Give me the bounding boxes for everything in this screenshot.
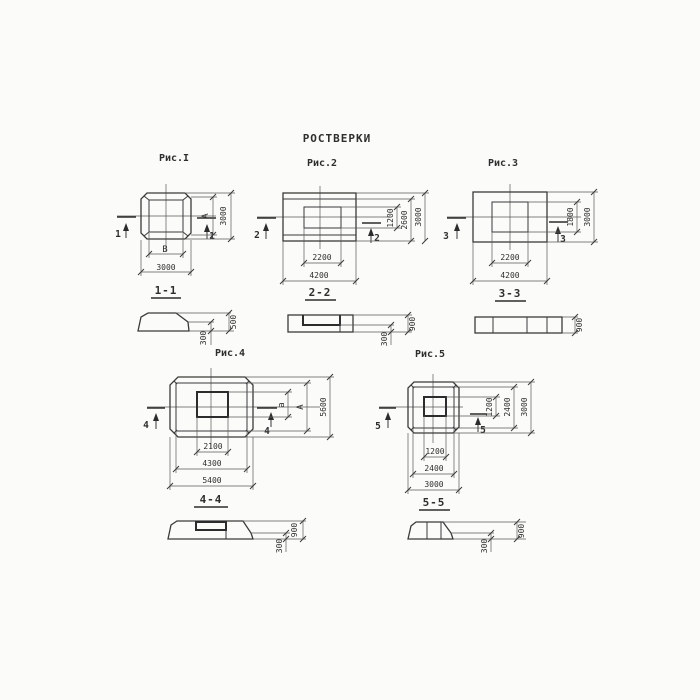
grillage-drawing: РОСТВЕРКИ Рис.I 1 1 А 3000 В 3000 1-1 [0,0,700,700]
section-3-3: 900 [475,314,584,336]
fig2-dim-right-mid: 2600 [400,210,409,229]
fig2-section-label: 2-2 [309,286,332,299]
fig3-cut-number-right: 3 [560,234,566,245]
fig4-centerlines [147,368,320,448]
sec1-dim-step: 300 [199,331,208,346]
fig5-dim-bottom-mid: 2400 [424,464,443,473]
fig4-plan-recess [197,392,228,417]
sec5-dim-total: 900 [517,524,526,539]
figure-3: Рис.3 3 3 1800 3000 2200 4200 3-3 [443,158,598,301]
section-1-1: 300 500 [138,310,238,345]
fig5-cut-mark-left: 5 [375,408,396,432]
fig2-dim-bottom-outer: 4200 [309,271,328,280]
fig2-dim-right-outer: 3000 [414,207,423,226]
fig5-dim-lines [408,382,535,494]
fig2-dim-ticks [280,190,428,284]
fig5-cut-number-left: 5 [375,421,381,432]
sec3-dividers [493,317,547,333]
fig2-dim-bottom-inner: 2200 [312,253,331,262]
fig4-dim-bottom-inner: 2100 [203,442,222,451]
sec1-profile [138,313,189,331]
fig1-dim-right-outer: 3000 [219,206,228,225]
figure-1-label: Рис.I [159,153,189,164]
section-4-4: 900 300 [168,518,306,553]
cut-arrow-icon [268,412,274,420]
fig4-cut-number-right: 4 [264,426,270,437]
fig4-dim-bottom-outer: 5400 [202,476,221,485]
fig5-section-label: 5-5 [423,496,446,509]
cut-arrow-icon [385,412,391,420]
fig1-cut-number-left: 1 [115,229,121,240]
cut-arrow-icon [153,413,159,421]
fig5-plan-inner [413,387,454,428]
fig5-plan-recess [424,397,446,416]
fig4-dim-right-mid: А [296,404,306,410]
sec3-profile [475,317,562,333]
fig5-dim-bottom-outer: 3000 [424,480,443,489]
fig3-dim-right-outer: 3000 [583,207,592,226]
page-title: РОСТВЕРКИ [303,132,372,145]
figure-1: Рис.I 1 1 А 3000 В 3000 1-1 [115,153,235,298]
fig3-cut-mark-left: 3 [443,218,466,242]
sec4-dim-total: 900 [290,523,299,538]
fig4-dim-bottom-mid: 4300 [202,459,221,468]
section-2-2: 900 300 [288,312,417,346]
fig3-dim-right-inner: 1800 [566,207,575,226]
cut-arrow-icon [555,226,561,234]
sec5-profile [408,522,453,539]
sec4-dim-step: 300 [275,539,284,554]
fig5-dim-right-outer: 3000 [520,397,529,416]
cut-arrow-icon [454,223,460,231]
fig5-dim-bottom-inner: 1200 [425,447,444,456]
figure-2-label: Рис.2 [307,158,337,169]
cut-arrow-icon [263,223,269,231]
fig2-cut-mark-left: 2 [254,218,276,241]
fig2-centerlines [257,186,390,249]
sec5-dividers [427,522,441,539]
fig5-corner-bevels [411,385,456,430]
fig5-dim-right-inner: 1200 [485,397,494,416]
fig2-plan-inner [304,207,341,228]
fig2-cut-number-right: 2 [374,233,380,244]
sec1-dim-total: 500 [229,315,238,330]
figure-5: Рис.5 5 5 1200 2400 3000 1200 2400 3000 … [375,349,535,510]
fig4-dim-lines [170,377,334,490]
fig3-dim-ticks [470,189,597,284]
cut-arrow-icon [475,417,481,425]
figure-2: Рис.2 2 2 1200 2600 3000 2200 4200 2-2 [254,158,429,300]
fig2-cut-number-left: 2 [254,230,260,241]
fig1-dim-bottom-outer: 3000 [156,263,175,272]
sec2-notch [303,315,340,325]
fig4-dim-right-outer: 5600 [319,397,328,416]
sec3-dim-total: 900 [575,318,584,333]
fig5-dim-right-mid: 2400 [503,397,512,416]
fig1-dim-bottom-inner: В [162,245,167,255]
fig5-plan-outline [408,382,459,433]
figure-4: Рис.4 4 4 а А 5600 2100 4300 5400 4-4 [143,348,334,507]
fig1-dim-lines [141,193,235,276]
sec2-dim-total: 900 [408,317,417,332]
sec4-notch [196,522,226,530]
sec2-dim-step: 300 [380,332,389,347]
sec5-dim-step: 300 [480,539,489,554]
cut-arrow-icon [123,223,129,231]
sec5-dim-ticks [488,519,520,542]
fig3-dim-bottom-inner: 2200 [500,253,519,262]
section-5-5: 900 300 [408,519,526,553]
fig4-cut-mark-right: 4 [257,408,277,437]
sec2-profile [288,315,353,332]
fig4-cut-number-left: 4 [143,420,149,431]
fig5-cut-number-right: 5 [480,425,486,436]
fig3-dim-bottom-outer: 4200 [500,271,519,280]
fig4-cut-mark-left: 4 [143,408,165,431]
fig3-section-label: 3-3 [499,287,522,300]
fig1-cut-mark-left: 1 [115,217,136,240]
fig4-section-label: 4-4 [200,493,223,506]
drawing-sheet: РОСТВЕРКИ Рис.I 1 1 А 3000 В 3000 1-1 [0,0,700,700]
fig4-dim-right-inner: а [277,402,287,407]
figure-3-label: Рис.3 [488,158,518,169]
cut-arrow-icon [368,228,374,236]
fig1-section-label: 1-1 [155,284,178,297]
sec2-extension-lines [340,315,412,345]
fig1-dim-right-inner: А [201,213,211,219]
fig3-cut-number-left: 3 [443,231,449,242]
figure-5-label: Рис.5 [415,349,445,360]
fig2-dim-right-inner: 1200 [386,208,395,227]
figure-4-label: Рис.4 [215,348,245,359]
